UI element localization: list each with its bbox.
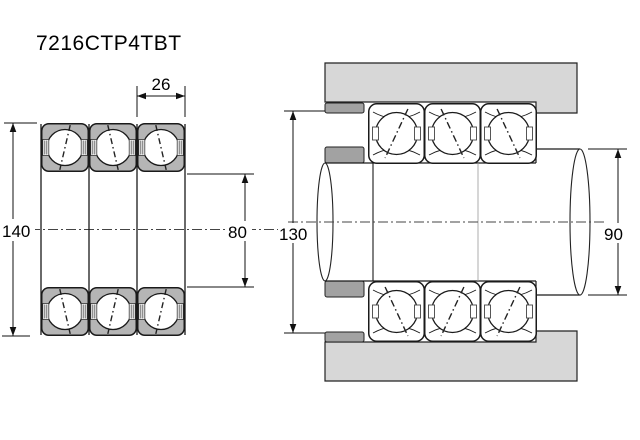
arrow-right-icon	[176, 93, 185, 100]
outer-spacer-top	[325, 103, 364, 113]
arrow-up-icon	[615, 149, 622, 158]
arrow-left-icon	[137, 93, 146, 100]
mounting-view: 130 90	[278, 63, 632, 381]
dim-label-26: 26	[152, 75, 171, 94]
inner-spacer-bottom	[325, 281, 364, 297]
mounted-bearing-top-2	[425, 104, 481, 164]
outer-spacer-bottom	[325, 332, 364, 342]
arrow-down-icon	[10, 327, 17, 336]
dim-label-140: 140	[2, 222, 30, 241]
part-number-title: 7216CTP4TBT	[36, 32, 182, 55]
dim-label-80: 80	[228, 223, 247, 242]
arrow-down-icon	[242, 278, 249, 287]
inner-spacer-top	[325, 147, 364, 163]
dimension-bearing-width: 26	[137, 75, 185, 117]
cross-section-view: 140 80 26	[0, 75, 278, 336]
mounted-bearing-bottom-3	[481, 282, 537, 342]
arrow-down-icon	[615, 286, 622, 295]
dim-label-90: 90	[604, 225, 623, 244]
mounted-bearing-bottom-2	[425, 282, 481, 342]
arrow-up-icon	[242, 174, 249, 183]
dimension-bore-diameter: 80	[187, 174, 254, 287]
mounted-bearing-top-3	[481, 104, 537, 164]
dim-label-130: 130	[279, 225, 307, 244]
bearing-technical-drawing: 7216CTP4TBT	[0, 0, 640, 440]
mounted-bearing-top-1	[369, 104, 425, 164]
arrow-up-icon	[10, 123, 17, 132]
arrow-up-icon	[290, 111, 297, 120]
dimension-outside-diameter: 140	[0, 123, 37, 336]
mounted-bearing-bottom-1	[369, 282, 425, 342]
arrow-down-icon	[290, 324, 297, 333]
drawing-canvas: 7216CTP4TBT	[0, 0, 640, 440]
